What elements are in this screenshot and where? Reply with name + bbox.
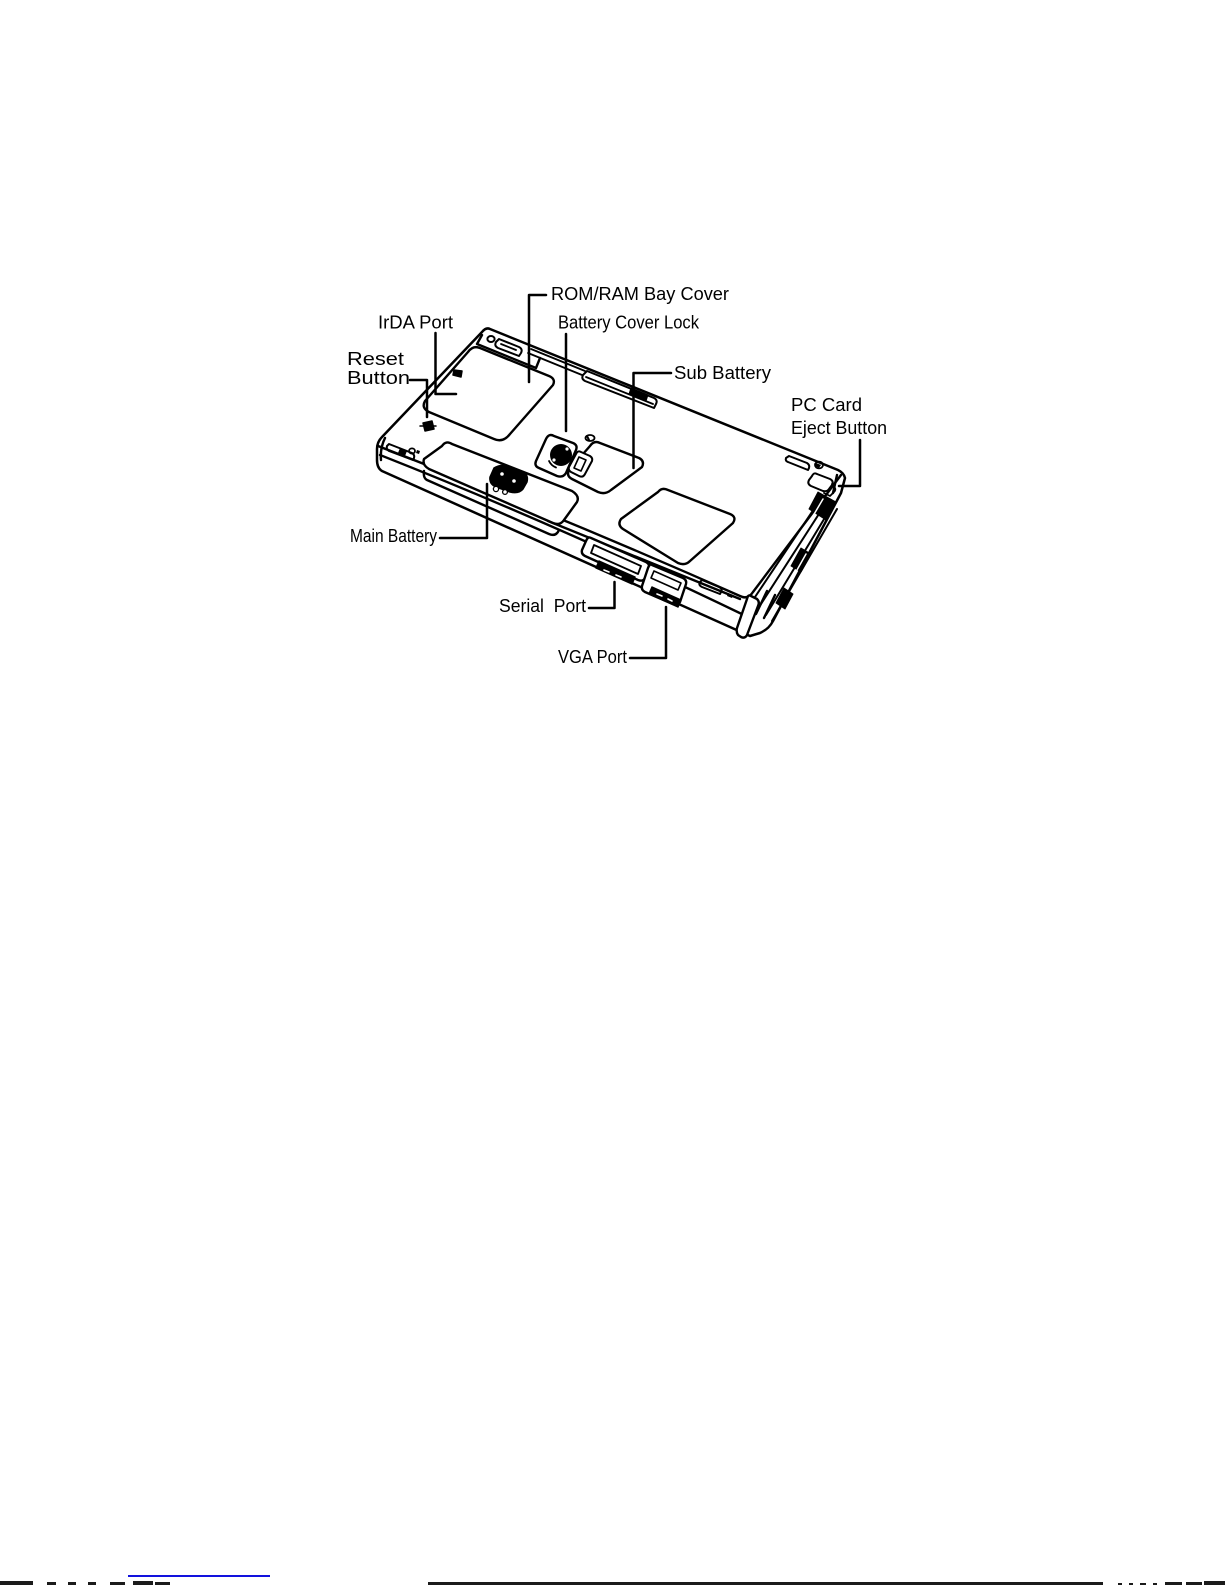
svg-text:Sub Battery: Sub Battery: [674, 363, 771, 383]
svg-text:Serial Port: Serial Port: [499, 596, 586, 616]
svg-text:Reset: Reset: [347, 349, 404, 369]
svg-text:Main Battery: Main Battery: [350, 526, 437, 546]
svg-text:IrDA Port: IrDA Port: [378, 313, 453, 333]
svg-text:ROM/RAM Bay Cover: ROM/RAM Bay Cover: [551, 284, 729, 304]
svg-text:VGA Port: VGA Port: [558, 647, 627, 667]
svg-text:Battery Cover Lock: Battery Cover Lock: [558, 313, 700, 333]
svg-text:Button: Button: [347, 368, 410, 388]
svg-text:PC Card: PC Card: [791, 395, 862, 415]
svg-text:Eject Button: Eject Button: [791, 418, 887, 438]
